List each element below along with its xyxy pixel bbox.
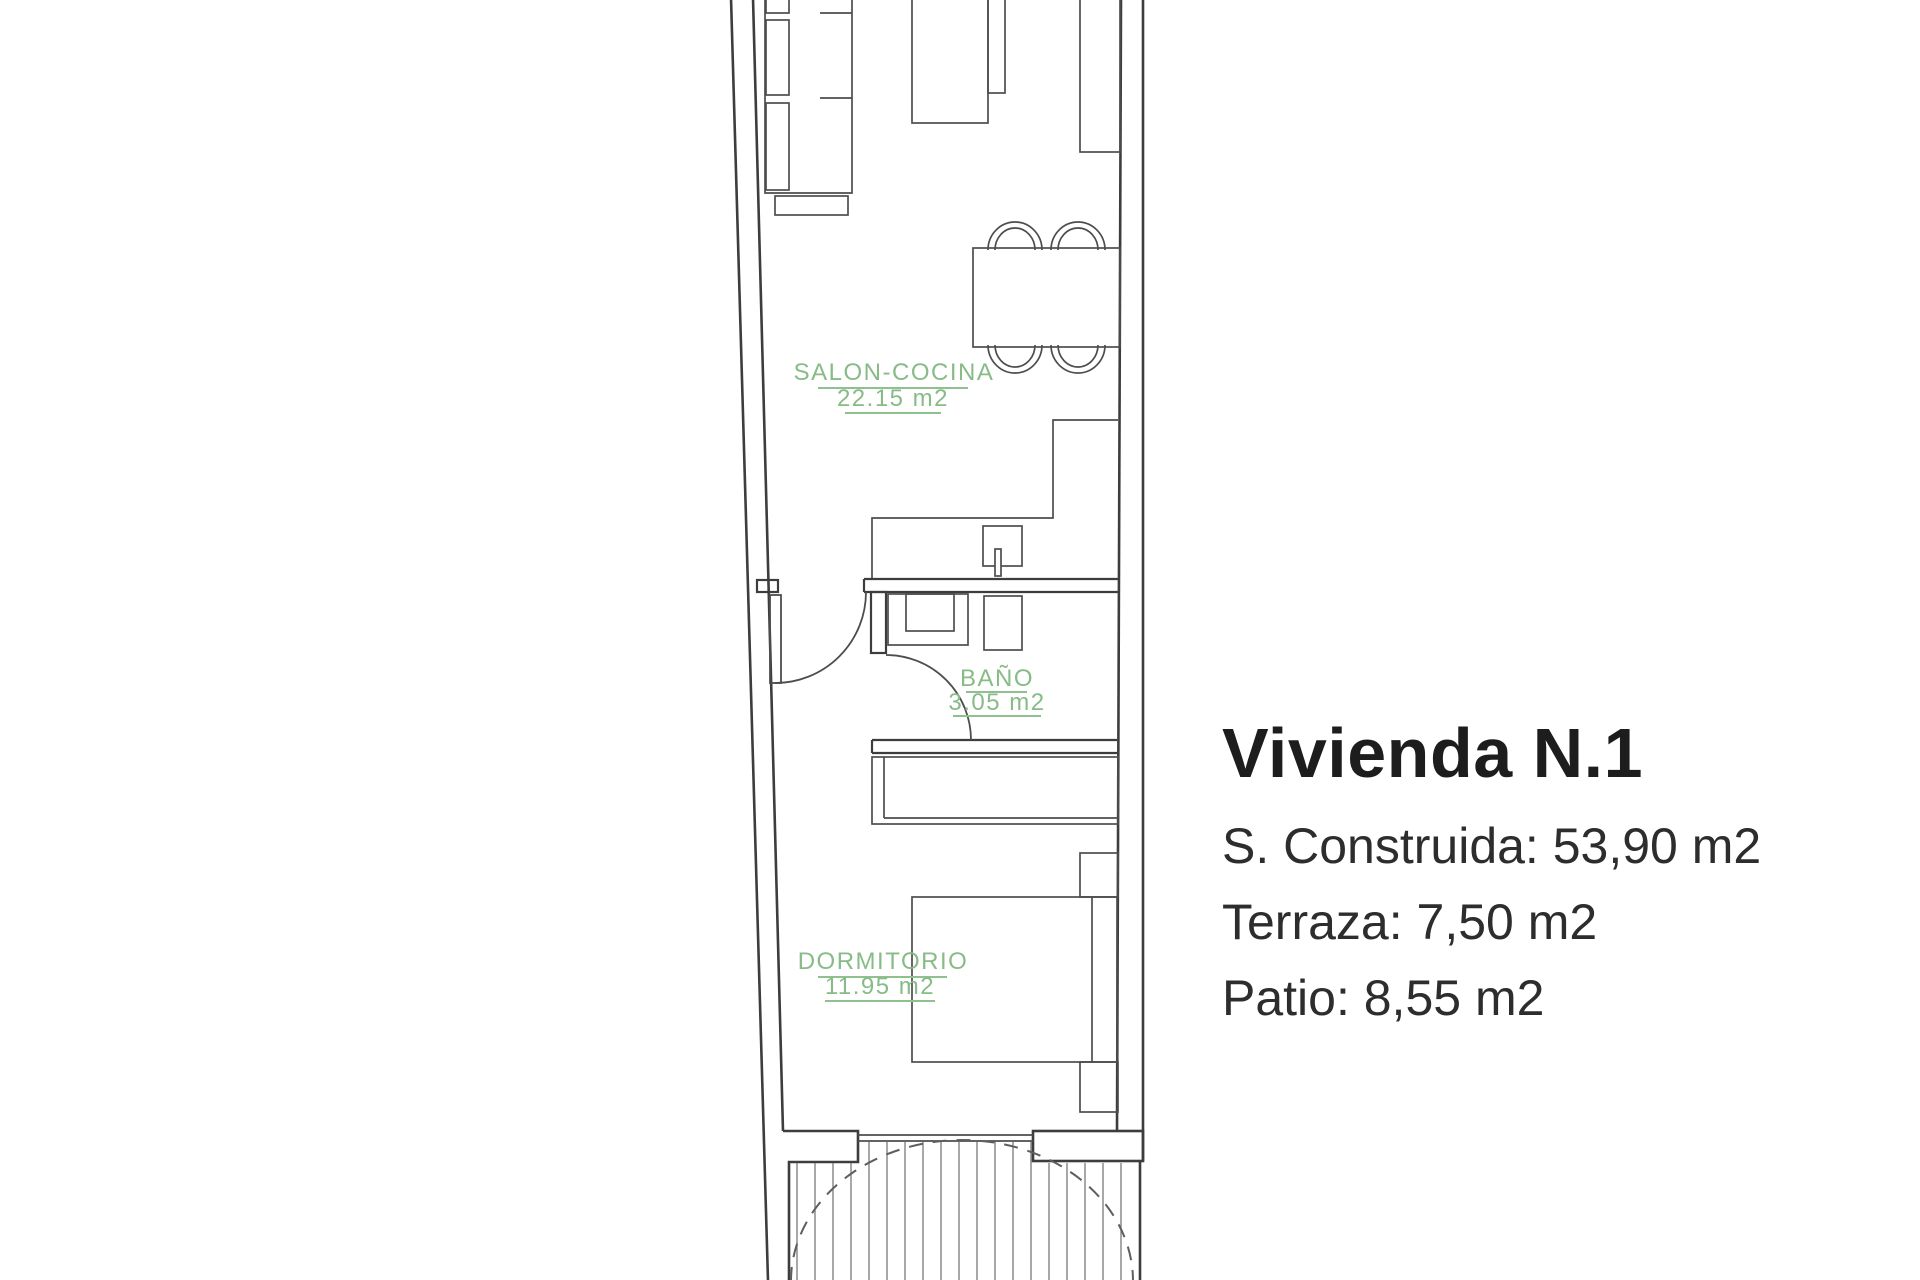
nightstand (1080, 853, 1118, 897)
chair-icon (1051, 345, 1105, 373)
room-area-dormitorio: 11.95 m2 (825, 973, 935, 1000)
toilet (984, 596, 1022, 650)
dining-table (973, 248, 1120, 347)
kitchen-counter (872, 0, 1120, 578)
room-label-dormitorio: DORMITORIO (798, 948, 969, 975)
coffee-table (912, 0, 1005, 123)
info-panel: Vivienda N.1 S. Construida: 53,90 m2 Ter… (1222, 716, 1761, 1046)
terrace-line: Terraza: 7,50 m2 (1222, 894, 1761, 950)
wardrobe (872, 757, 1118, 824)
bed (912, 897, 1117, 1062)
entrance-door (770, 592, 866, 683)
entrance-door-arc (775, 592, 866, 683)
room-labels: SALON-COCINA 22.15 m2 BAÑO 3.05 m2 DORMI… (794, 359, 1046, 1001)
room-label-salon-cocina: SALON-COCINA (794, 359, 995, 386)
chair-icon (988, 345, 1042, 373)
chair-icon (988, 222, 1042, 250)
patio-line: Patio: 8,55 m2 (1222, 970, 1761, 1026)
nightstand (1080, 1062, 1118, 1112)
chair-icon (1051, 222, 1105, 250)
kitchen-sink (983, 526, 1022, 576)
dining-set (973, 222, 1120, 373)
page: SALON-COCINA 22.15 m2 BAÑO 3.05 m2 DORMI… (0, 0, 1920, 1280)
built-area-line: S. Construida: 53,90 m2 (1222, 818, 1761, 874)
room-label-bano: BAÑO (960, 665, 1034, 692)
room-area-salon-cocina: 22.15 m2 (837, 385, 949, 412)
exterior-walls (731, 0, 1143, 1280)
room-area-bano: 3.05 m2 (948, 689, 1045, 716)
floor-plan: SALON-COCINA 22.15 m2 BAÑO 3.05 m2 DORMI… (0, 0, 1920, 1280)
sofa (765, 0, 852, 215)
interior-walls (757, 579, 1118, 753)
dwelling-title: Vivienda N.1 (1222, 716, 1761, 790)
bathroom-sink (888, 594, 968, 645)
